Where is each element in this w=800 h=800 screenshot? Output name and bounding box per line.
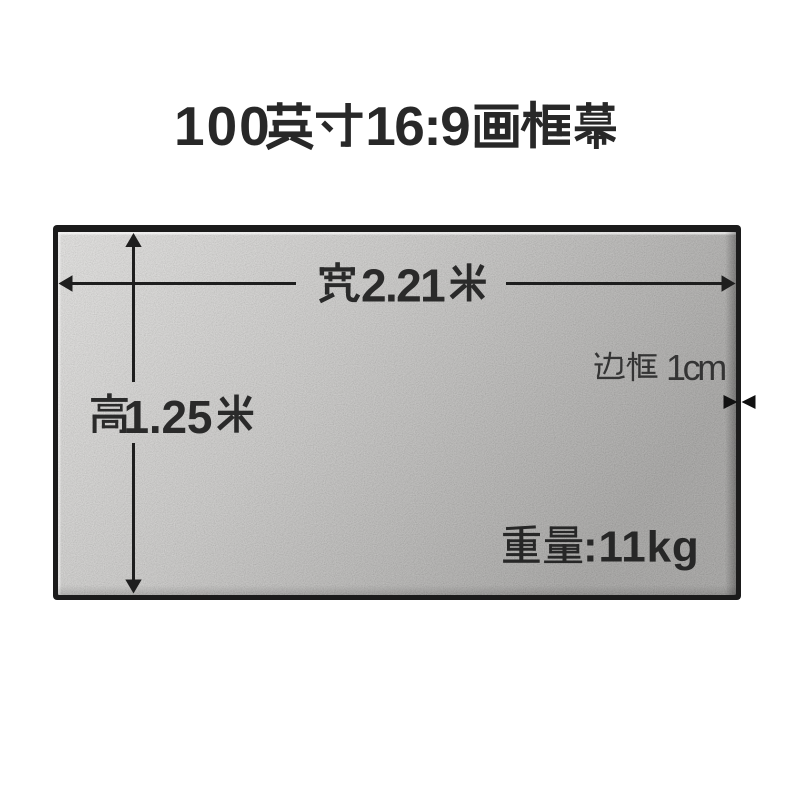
- svg-text:1cm: 1cm: [666, 347, 725, 388]
- svg-text:2.21: 2.21: [361, 260, 445, 312]
- svg-text:16:9: 16:9: [365, 95, 469, 157]
- svg-text:1.25: 1.25: [124, 391, 213, 443]
- svg-text::11kg: :11kg: [583, 523, 700, 572]
- svg-text:100: 100: [174, 95, 272, 157]
